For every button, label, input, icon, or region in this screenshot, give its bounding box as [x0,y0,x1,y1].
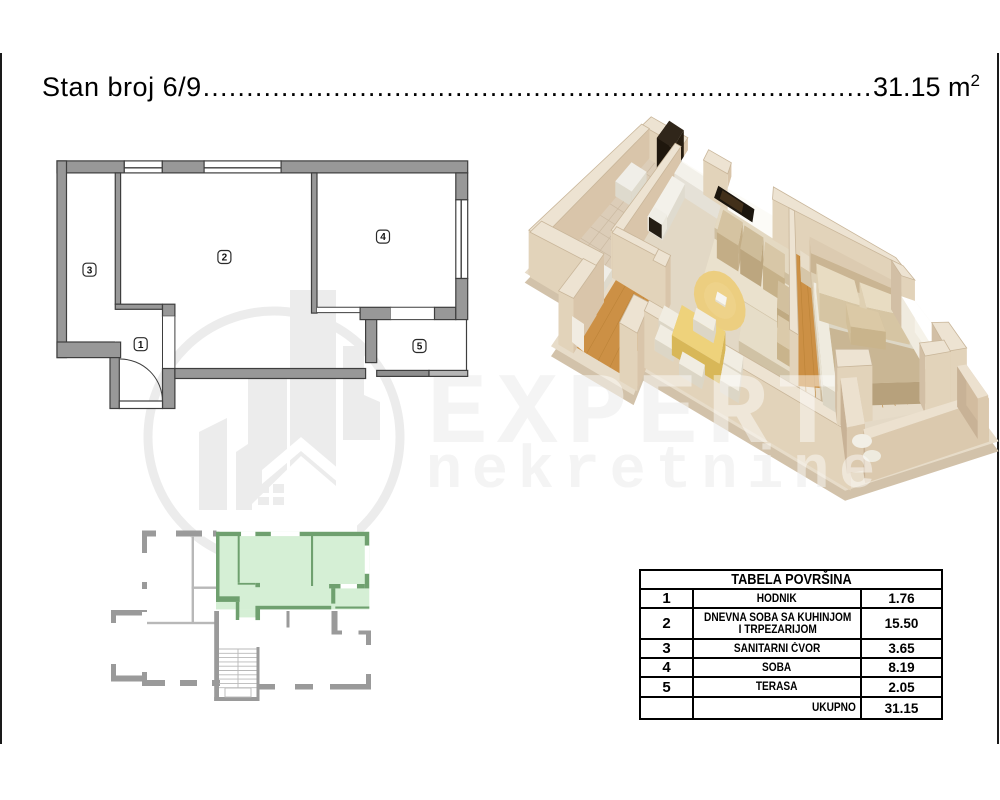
svg-text:nekretnine: nekretnine [426,438,885,506]
svg-text:2: 2 [222,253,228,264]
svg-text:5: 5 [417,342,423,353]
svg-text:3: 3 [87,265,93,276]
svg-text:4: 4 [380,232,386,243]
svg-text:1: 1 [138,340,144,351]
